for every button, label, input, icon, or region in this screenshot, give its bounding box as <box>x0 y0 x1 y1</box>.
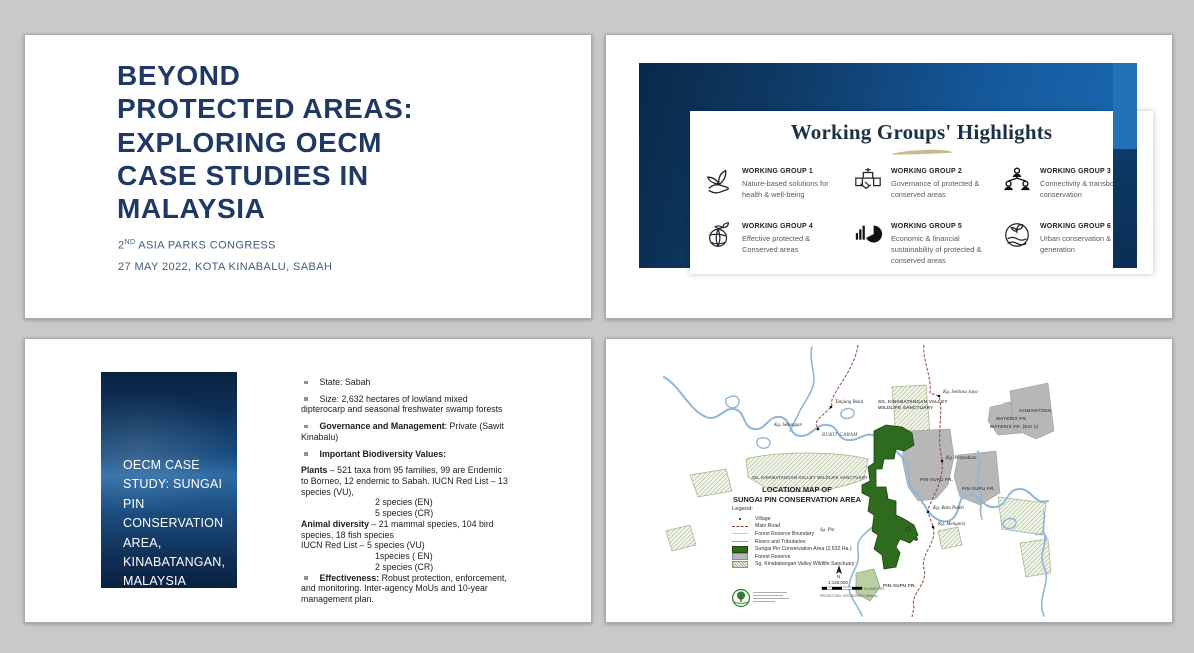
map-label: MATERIS FR. (Ext 1) <box>990 424 1038 429</box>
text: 2 species (CR) <box>375 562 433 572</box>
slide-thumbnail-4[interactable]: LOCATION MAP OF SUNGAI PIN CONSERVATION … <box>605 338 1173 623</box>
map-label: Kg. Sentosa Jaya <box>943 390 978 395</box>
case-study-details: State: SabahSize: 2,632 hectares of lowl… <box>301 377 509 611</box>
detail-line: 2 species (CR) <box>301 562 509 573</box>
map-label: PIN-SUPU FR. <box>883 583 916 588</box>
river-swatch <box>732 541 748 542</box>
congress-ordinal: ND <box>125 239 136 246</box>
case-study-title: OECM CASE STUDY: SUNGAI PIN CONSERVATION… <box>123 456 227 592</box>
working-group-description: Urban conservation & a new generation <box>1040 233 1144 255</box>
working-group-description: Economic & financial sustainability of p… <box>891 233 995 266</box>
detail-line: Animal diversity – 21 mammal species, 10… <box>301 519 509 540</box>
working-group-item-1: WORKING GROUP 1Nature-based solutions fo… <box>704 165 849 200</box>
slide-thumbnail-2[interactable]: Working Groups' Highlights WORKING GROUP… <box>605 34 1173 319</box>
text: 2 species (EN) <box>375 497 433 507</box>
globe-sprout-icon <box>704 220 734 250</box>
green-swatch <box>732 546 748 553</box>
legend-label: Forest Reserve Boundary <box>755 531 814 537</box>
scale-bar <box>822 587 862 590</box>
detail-line: 5 species (CR) <box>301 508 509 519</box>
highlights-card: Working Groups' Highlights WORKING GROUP… <box>690 111 1153 274</box>
map-label: PIN-SUPU FR. <box>962 486 995 491</box>
map-label: SG. KINABATANGAN VALLEY WILDLIFE SANCTUA… <box>752 475 868 480</box>
map-label: MATERIS FR. <box>996 416 1027 421</box>
map-label: BUKIT GARAM <box>822 433 858 438</box>
legend-row: Main Road <box>732 523 854 531</box>
text: State: Sabah <box>320 377 371 387</box>
bullet-item: State: Sabah <box>301 377 509 388</box>
text: IUCN Red List – 5 species (VU) <box>301 540 425 550</box>
map-label: 1:140,000 <box>828 580 848 585</box>
map-label: Kg. Perpaduan <box>946 456 977 461</box>
map-title: LOCATION MAP OF SUNGAI PIN CONSERVATION … <box>730 485 864 505</box>
legend-row: Village <box>732 515 854 523</box>
bullet-item: Effectiveness: Robust protection, enforc… <box>301 573 509 605</box>
working-group-number: WORKING GROUP 4 <box>742 223 846 230</box>
working-group-description: Governance of protected & conserved area… <box>891 178 995 200</box>
dot-swatch <box>732 518 748 521</box>
map-label: WILDLIFE SANCTUARY <box>878 405 933 410</box>
map-legend: Legend: VillageMain RoadForest Reserve B… <box>732 506 854 568</box>
case-study-side-panel: OECM CASE STUDY: SUNGAI PIN CONSERVATION… <box>101 372 237 588</box>
presentation-title: BEYOND PROTECTED AREAS: EXPLORING OECM C… <box>117 59 547 226</box>
detail-line: 2 species (EN) <box>301 497 509 508</box>
text: 5 species (CR) <box>375 508 433 518</box>
gold-underline-swoosh <box>891 149 951 155</box>
congress-name: ASIA PARKS CONGRESS <box>135 240 275 252</box>
slide-grid-canvas: { "colors":{ "canvas_bg":"#c9c9c9","titl… <box>0 0 1194 653</box>
map-label: GOMANTONG <box>1019 408 1052 413</box>
boundary-swatch <box>732 533 748 534</box>
working-group-description: Connectivity & transboundary conservatio… <box>1040 178 1144 200</box>
road-swatch <box>732 526 748 527</box>
legend-label: Main Road <box>755 523 780 529</box>
map-label: PROJECTION : RSO BORNEO (Meters) <box>820 594 878 598</box>
detail-line: 1species ( EN) <box>301 551 509 562</box>
detail-line: Plants – 521 taxa from 95 families, 99 a… <box>301 465 509 497</box>
legend-row: Forest Reserve Boundary <box>732 530 854 538</box>
map-graphic <box>606 339 1172 622</box>
legend-label: Sg. Kinabatangan Valley Wildlife Sanctua… <box>755 561 854 567</box>
working-group-description: Effective protected & Conserved areas <box>742 233 846 255</box>
hand-seedling-icon <box>704 165 734 195</box>
bold-text: Governance and Management <box>320 421 445 431</box>
bullet-item: Important Biodiversity Values: <box>301 449 509 460</box>
map-label: Kg. Mengaris <box>938 522 966 527</box>
map-label: Tanjung Bulat <box>835 400 863 405</box>
text: Size: 2,632 hectares of lowland mixed di… <box>301 394 502 415</box>
event-date-location: 27 MAY 2022, KOTA KINABALU, SABAH <box>118 261 332 273</box>
map-label: SG. KINABATANGAN VALLEY <box>878 399 948 404</box>
working-groups-grid: WORKING GROUP 1Nature-based solutions fo… <box>704 165 1147 267</box>
legend-row: Sungai Pin Conservation Area (2,632 Ha.) <box>732 545 854 553</box>
working-group-number: WORKING GROUP 5 <box>891 223 995 230</box>
hatch-swatch <box>732 561 748 568</box>
map-label: PIN-SUPU FR. <box>920 477 953 482</box>
legend-label: Village <box>755 516 770 522</box>
working-group-number: WORKING GROUP 1 <box>742 168 846 175</box>
legend-label: Rivers and Tributaries <box>755 539 805 545</box>
bold-text: Important Biodiversity Values: <box>320 449 447 459</box>
working-group-number: WORKING GROUP 3 <box>1040 168 1144 175</box>
working-group-text: WORKING GROUP 5Economic & financial sust… <box>891 220 995 266</box>
map-label: Kg. Sebongan <box>774 423 802 428</box>
working-group-item-6: WORKING GROUP 6Urban conservation & a ne… <box>1002 220 1147 266</box>
forestry-logo-icon <box>733 590 750 607</box>
bold-text: Effectiveness: <box>320 573 380 583</box>
legend-header: Legend: <box>732 506 854 512</box>
slide-thumbnail-3[interactable]: OECM CASE STUDY: SUNGAI PIN CONSERVATION… <box>24 338 592 623</box>
map-label: Sg. Pin <box>820 528 834 533</box>
working-group-item-3: WORKING GROUP 3Connectivity & transbound… <box>1002 165 1147 200</box>
map-label: KILOMETERS <box>864 587 885 591</box>
legend-row: Sg. Kinabatangan Valley Wildlife Sanctua… <box>732 561 854 569</box>
working-group-text: WORKING GROUP 2Governance of protected &… <box>891 165 995 200</box>
legend-row: Forest Reserve <box>732 553 854 561</box>
working-group-number: WORKING GROUP 2 <box>891 168 995 175</box>
working-group-item-5: WORKING GROUP 5Economic & financial sust… <box>853 220 998 266</box>
bold-text: Animal diversity <box>301 519 369 529</box>
working-group-text: WORKING GROUP 3Connectivity & transbound… <box>1040 165 1144 200</box>
bullet-item: Governance and Management: Private (Sawi… <box>301 421 509 442</box>
working-group-text: WORKING GROUP 1Nature-based solutions fo… <box>742 165 846 200</box>
field-sprout-icon <box>1002 220 1032 250</box>
working-group-number: WORKING GROUP 6 <box>1040 223 1144 230</box>
logo-caption-lines <box>753 592 789 604</box>
slide-thumbnail-1[interactable]: BEYOND PROTECTED AREAS: EXPLORING OECM C… <box>24 34 592 319</box>
detail-line: IUCN Red List – 5 species (VU) <box>301 540 509 551</box>
working-group-item-2: WORKING GROUP 2Governance of protected &… <box>853 165 998 200</box>
handshake-building-icon <box>853 165 883 195</box>
legend-label: Forest Reserve <box>755 554 790 560</box>
conservation-area-shape <box>862 425 918 569</box>
text: 1species ( EN) <box>375 551 433 561</box>
legend-row: Rivers and Tributaries <box>732 538 854 546</box>
working-group-text: WORKING GROUP 6Urban conservation & a ne… <box>1040 220 1144 266</box>
blue-gradient-frame: Working Groups' Highlights WORKING GROUP… <box>639 63 1137 268</box>
working-group-text: WORKING GROUP 4Effective protected & Con… <box>742 220 846 266</box>
bold-text: Plants <box>301 465 327 475</box>
map-label: Kg. Batu Puteh <box>933 506 964 511</box>
gray-swatch <box>732 553 748 560</box>
bar-pie-chart-icon <box>853 220 883 250</box>
map-label: N <box>837 574 840 579</box>
legend-rows: VillageMain RoadForest Reserve BoundaryR… <box>732 515 854 568</box>
working-group-item-4: WORKING GROUP 4Effective protected & Con… <box>704 220 849 266</box>
working-groups-title: Working Groups' Highlights <box>690 120 1153 145</box>
text: – 521 taxa from 95 families, 99 are Ende… <box>301 465 508 496</box>
working-group-description: Nature-based solutions for health & well… <box>742 178 846 200</box>
people-network-icon <box>1002 165 1032 195</box>
legend-label: Sungai Pin Conservation Area (2,632 Ha.) <box>755 546 852 552</box>
bullet-item: Size: 2,632 hectares of lowland mixed di… <box>301 394 509 415</box>
congress-subtitle: 2ND ASIA PARKS CONGRESS <box>118 239 276 252</box>
